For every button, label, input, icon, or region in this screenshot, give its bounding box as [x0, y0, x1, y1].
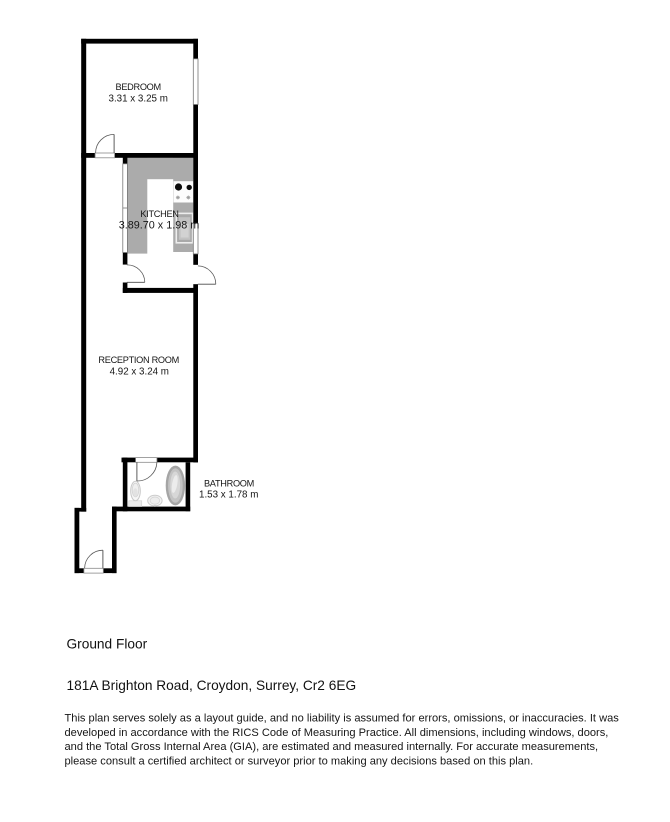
svg-text:This plan serves solely as a l: This plan serves solely as a layout guid… [65, 712, 620, 724]
svg-text:RECEPTION ROOM: RECEPTION ROOM [98, 355, 179, 365]
svg-text:1.53 x 1.78 m: 1.53 x 1.78 m [199, 490, 258, 501]
svg-text:4.92 x 3.24 m: 4.92 x 3.24 m [110, 366, 169, 377]
svg-text:KITCHEN: KITCHEN [140, 209, 178, 219]
svg-text:3.89.70 x 1.98 m: 3.89.70 x 1.98 m [119, 219, 199, 231]
svg-text:3.31 x 3.25 m: 3.31 x 3.25 m [109, 93, 168, 104]
svg-text:181A Brighton Road, Croydon, S: 181A Brighton Road, Croydon, Surrey, Cr2… [67, 678, 357, 693]
svg-text:Ground Floor: Ground Floor [67, 637, 148, 652]
svg-text:BATHROOM: BATHROOM [204, 478, 254, 488]
svg-text:BEDROOM: BEDROOM [116, 82, 161, 92]
svg-text:please consult a certified arc: please consult a certified architect or … [65, 756, 534, 768]
svg-text:developed in accordance with t: developed in accordance with the RICS Co… [65, 727, 609, 739]
svg-text:and the Total Gross Internal A: and the Total Gross Internal Area (GIA),… [65, 741, 599, 753]
